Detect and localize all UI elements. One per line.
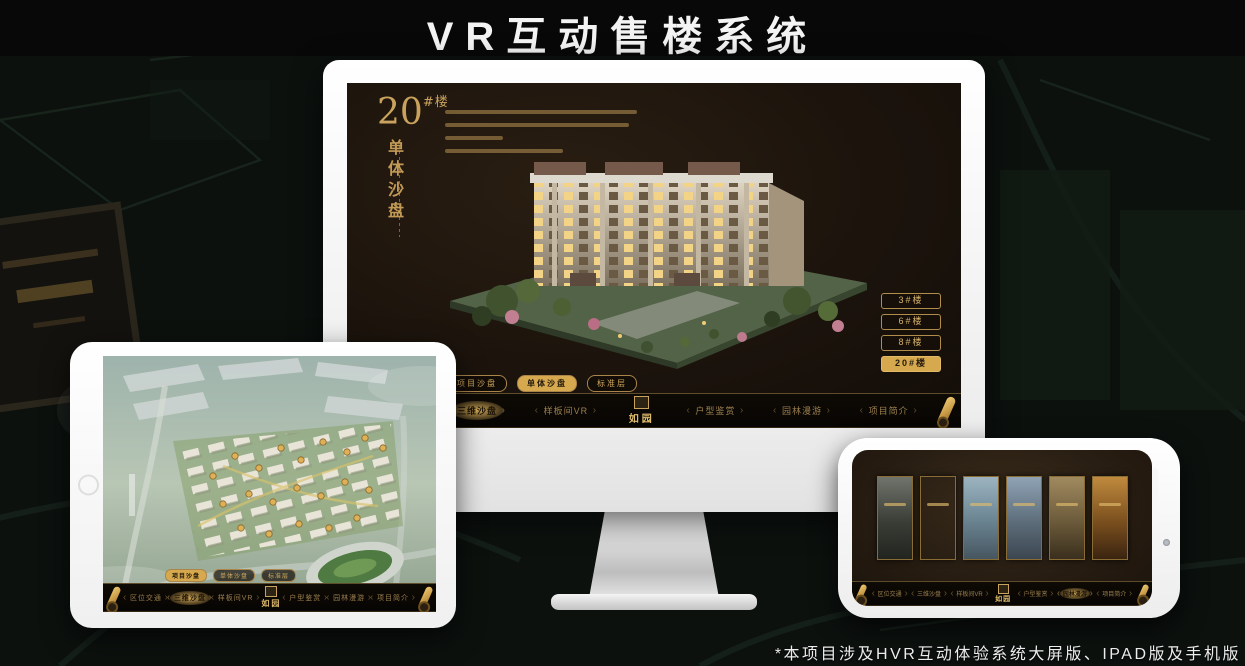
ipad-screen: 项目沙盘 单体沙盘 标准层 区位交通 三维沙盘 样板间VR 如园 户型鉴赏 园林… xyxy=(103,356,436,612)
sandtable-sub-tabs: 项目沙盘 单体沙盘 标准层 xyxy=(447,375,637,392)
ipad-scroll-left-icon[interactable] xyxy=(105,585,121,610)
scroll-menu-icon[interactable] xyxy=(936,395,956,426)
phone-nav-3d-sandtable[interactable]: 三维沙盘 xyxy=(914,588,944,599)
nav-item-garden-roam[interactable]: 园林漫游 xyxy=(776,401,828,420)
nav-item-project-intro[interactable]: 项目简介 xyxy=(863,401,915,420)
nav-item-3d-sandtable[interactable]: 三维沙盘 xyxy=(451,401,503,420)
phone-nav-project-intro[interactable]: 项目简介 xyxy=(1099,588,1129,599)
ipad-nav-floorplan[interactable]: 户型鉴赏 xyxy=(285,591,325,605)
page-title: VR互动售楼系统 xyxy=(0,4,1245,62)
sub-tab-single-sandtable[interactable]: 单体沙盘 xyxy=(517,375,577,392)
phone-speaker-bezel xyxy=(1152,468,1158,526)
sub-tab-standard-floor[interactable]: 标准层 xyxy=(587,375,637,392)
phone-device: 区位交通 三维沙盘 样板间VR 如园 户型鉴赏 园林漫游 项目简介 xyxy=(838,438,1180,618)
building-number-suffix: #楼 xyxy=(423,95,449,110)
monitor-stand-neck xyxy=(589,512,719,598)
ipad-nav-project-intro[interactable]: 项目简介 xyxy=(373,591,413,605)
gallery-panel-interior[interactable] xyxy=(920,476,956,560)
phone-brand-logo[interactable]: 如园 xyxy=(995,584,1011,604)
ipad-nav-showroom-vr[interactable]: 样板间VR xyxy=(214,591,258,605)
phone-nav-showroom-vr[interactable]: 样板间VR xyxy=(953,588,985,599)
ipad-sub-tab-project-sandtable[interactable]: 项目沙盘 xyxy=(165,569,207,582)
brand-seal-icon xyxy=(634,396,649,409)
phone-camera-icon xyxy=(1163,539,1170,546)
building-number: 20 xyxy=(377,92,423,133)
phone-main-nav: 区位交通 三维沙盘 样板间VR 如园 户型鉴赏 园林漫游 项目简介 xyxy=(852,581,1152,606)
ipad-nav-location-traffic[interactable]: 区位交通 xyxy=(126,591,166,605)
floor-button-3[interactable]: 3#楼 xyxy=(881,293,941,309)
phone-brand-seal-icon xyxy=(998,584,1009,594)
footnote: *本项目涉及HVR互动体验系统大屏版、IPAD版及手机版 xyxy=(775,640,1241,664)
floor-button-group: 3#楼 6#楼 8#楼 20#楼 xyxy=(881,293,941,372)
phone-nav-garden-roam[interactable]: 园林漫游 xyxy=(1060,588,1090,599)
ipad-sub-tabs: 项目沙盘 单体沙盘 标准层 xyxy=(165,569,296,582)
phone-nav-location-traffic[interactable]: 区位交通 xyxy=(875,588,905,599)
monitor-stand-base xyxy=(551,594,757,610)
ipad-scroll-right-icon[interactable] xyxy=(417,585,433,610)
phone-screen: 区位交通 三维沙盘 样板间VR 如园 户型鉴赏 园林漫游 项目简介 xyxy=(852,450,1152,606)
building-headline: 20#楼 单体沙盘 xyxy=(377,95,449,223)
phone-nav-floorplan[interactable]: 户型鉴赏 xyxy=(1020,588,1050,599)
nav-item-showroom-vr[interactable]: 样板间VR xyxy=(538,401,595,420)
floor-button-6[interactable]: 6#楼 xyxy=(881,314,941,330)
brand-logo[interactable]: 如园 xyxy=(629,396,655,425)
nav-item-floorplan[interactable]: 户型鉴赏 xyxy=(689,401,741,420)
phone-scroll-right-icon[interactable] xyxy=(1136,584,1149,604)
floor-button-8[interactable]: 8#楼 xyxy=(881,335,941,351)
ipad-device: 项目沙盘 单体沙盘 标准层 区位交通 三维沙盘 样板间VR 如园 户型鉴赏 园林… xyxy=(70,342,456,628)
sub-tab-project-sandtable[interactable]: 项目沙盘 xyxy=(447,375,507,392)
headline-divider xyxy=(399,145,400,237)
ipad-home-button[interactable] xyxy=(78,475,99,496)
ipad-main-nav: 区位交通 三维沙盘 样板间VR 如园 户型鉴赏 园林漫游 项目简介 xyxy=(103,583,436,612)
gallery-panel-lobby[interactable] xyxy=(1092,476,1128,560)
ipad-brand-seal-icon xyxy=(265,586,277,597)
gallery-panel-courtyard[interactable] xyxy=(877,476,913,560)
gallery-panel-building[interactable] xyxy=(1006,476,1042,560)
gallery-panel-garden[interactable] xyxy=(963,476,999,560)
ipad-nav-3d-sandtable[interactable]: 三维沙盘 xyxy=(170,591,210,605)
ipad-nav-garden-roam[interactable]: 园林漫游 xyxy=(329,591,369,605)
floor-button-20[interactable]: 20#楼 xyxy=(881,356,941,372)
phone-scroll-left-icon[interactable] xyxy=(854,584,867,604)
panorama-gallery xyxy=(852,476,1152,560)
ipad-sub-tab-single-sandtable[interactable]: 单体沙盘 xyxy=(213,569,255,582)
gallery-panel-autumn-garden[interactable] xyxy=(1049,476,1085,560)
building-sandtable-render[interactable] xyxy=(442,151,872,369)
ipad-brand-logo[interactable]: 如园 xyxy=(261,586,281,609)
ipad-sub-tab-standard-floor[interactable]: 标准层 xyxy=(261,569,296,582)
headline-vertical-label: 单体沙盘 xyxy=(381,139,405,223)
